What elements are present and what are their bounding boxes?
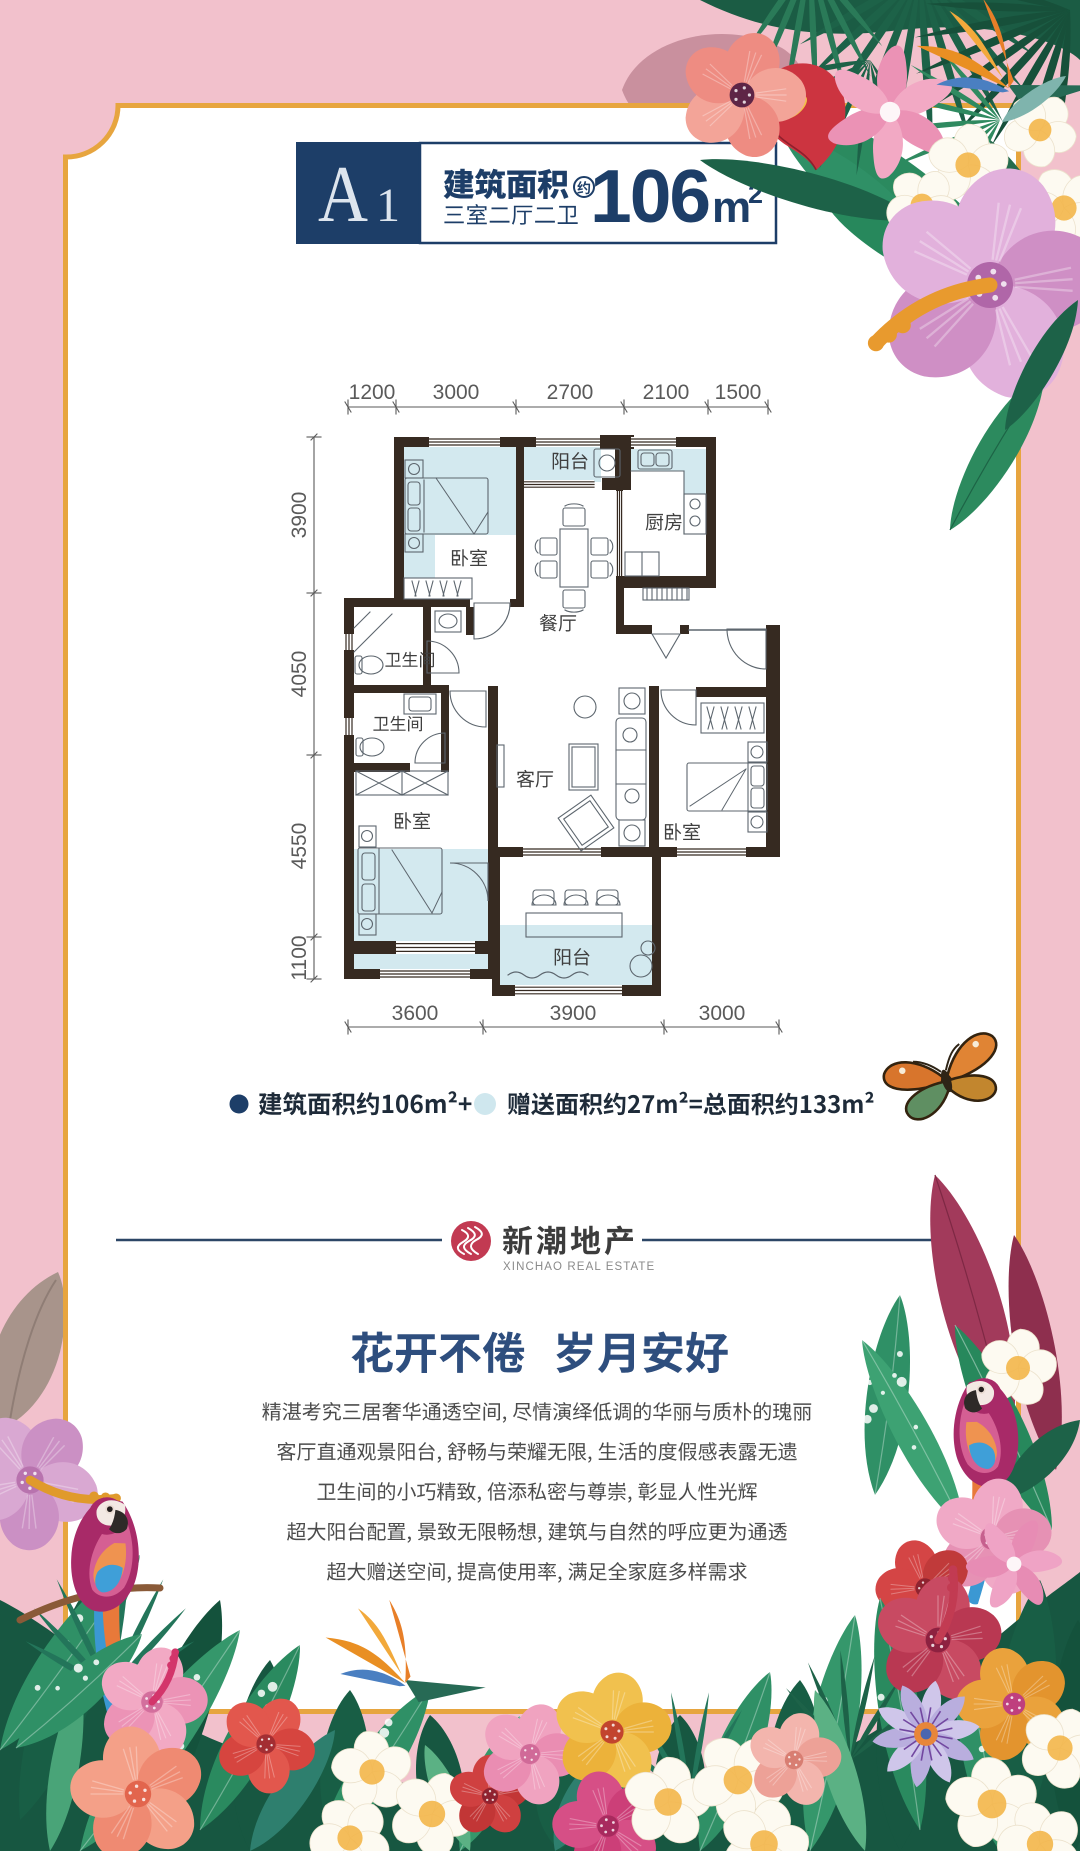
svg-text:2700: 2700 <box>547 381 594 404</box>
svg-text:1500: 1500 <box>715 381 762 404</box>
svg-text:3900: 3900 <box>550 1002 597 1025</box>
svg-text:3900: 3900 <box>288 492 311 539</box>
svg-text:m: m <box>712 183 751 232</box>
svg-text:XINCHAO REAL ESTATE: XINCHAO REAL ESTATE <box>503 1261 655 1273</box>
svg-text:106: 106 <box>590 154 709 238</box>
svg-text:3000: 3000 <box>699 1002 746 1025</box>
svg-text:4050: 4050 <box>288 651 311 698</box>
svg-text:3000: 3000 <box>433 381 480 404</box>
svg-text:1100: 1100 <box>288 935 311 980</box>
svg-text:3600: 3600 <box>392 1002 439 1025</box>
svg-text:2100: 2100 <box>643 381 690 404</box>
svg-text:1200: 1200 <box>349 381 396 404</box>
svg-text:A: A <box>318 151 368 239</box>
svg-text:4550: 4550 <box>288 823 311 870</box>
svg-text:1: 1 <box>376 179 400 232</box>
